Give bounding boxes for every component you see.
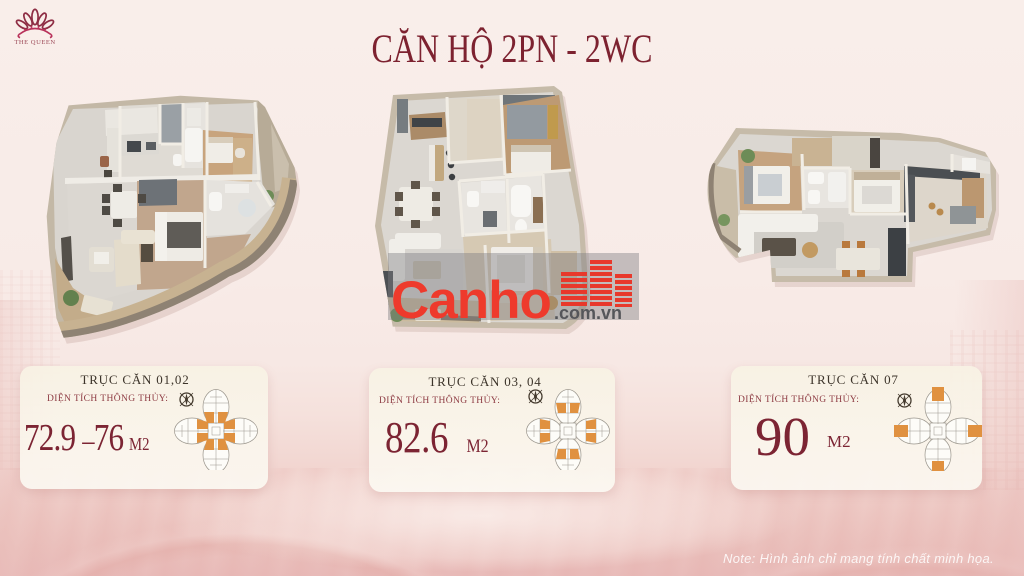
svg-text:THE QUEEN: THE QUEEN	[14, 39, 55, 45]
